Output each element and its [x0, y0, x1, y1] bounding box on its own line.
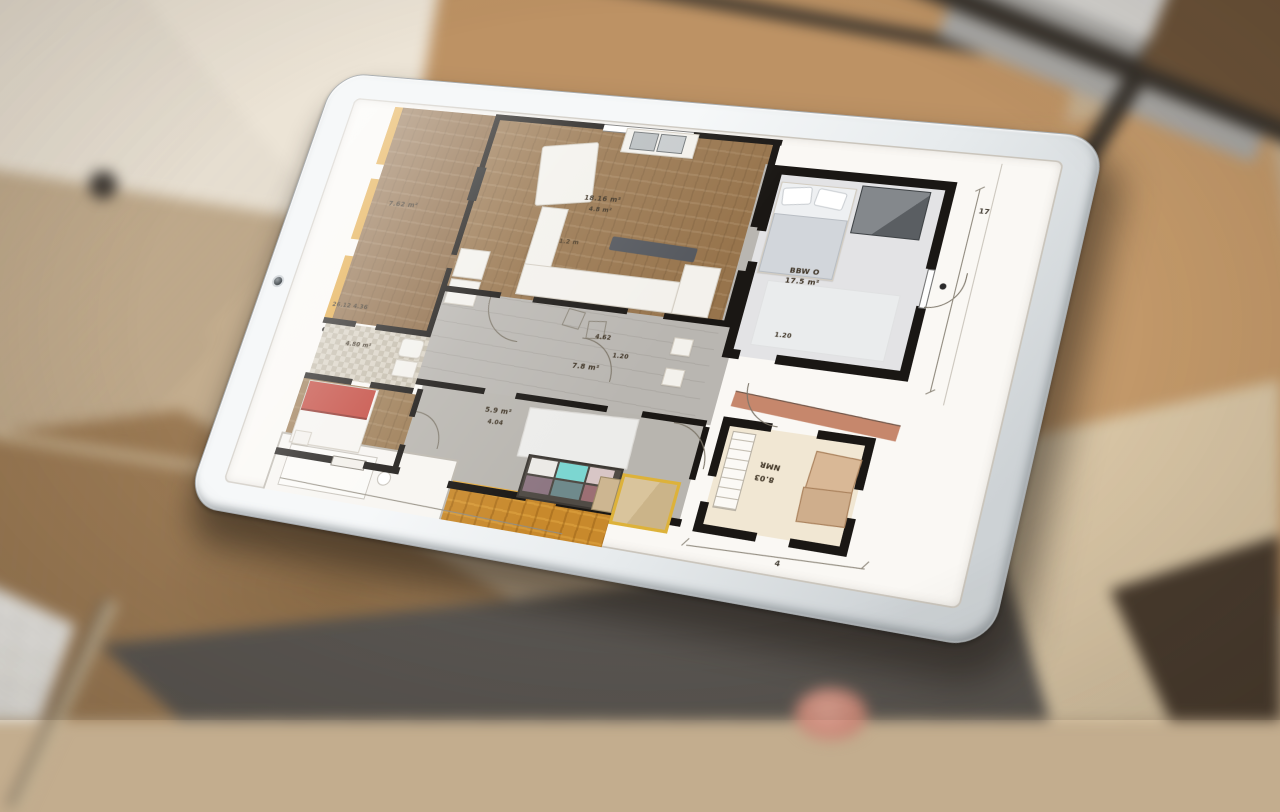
- room-area-label: 1.20: [611, 352, 629, 361]
- room-area-label: 4.62: [594, 333, 612, 342]
- photo-scene: { "palette": { "bezel": "#edf0f1", "scre…: [0, 0, 1280, 720]
- kitchen-sink: [629, 131, 660, 151]
- room-area-label: 1.2 m: [558, 238, 580, 247]
- dimension-tick: [925, 389, 935, 394]
- room-area-label: 4.8 m²: [588, 206, 613, 215]
- closet-dark: [850, 185, 932, 240]
- bed-br-blanket: [795, 487, 852, 528]
- dimension-tick: [861, 561, 870, 569]
- room-area-label: 1.20: [774, 331, 793, 340]
- pillow: [781, 187, 813, 206]
- dimension-label: 4: [773, 559, 781, 569]
- fingertip: [795, 688, 867, 740]
- kitchen-sink: [656, 134, 687, 154]
- room-area-label: 4.04: [486, 418, 504, 427]
